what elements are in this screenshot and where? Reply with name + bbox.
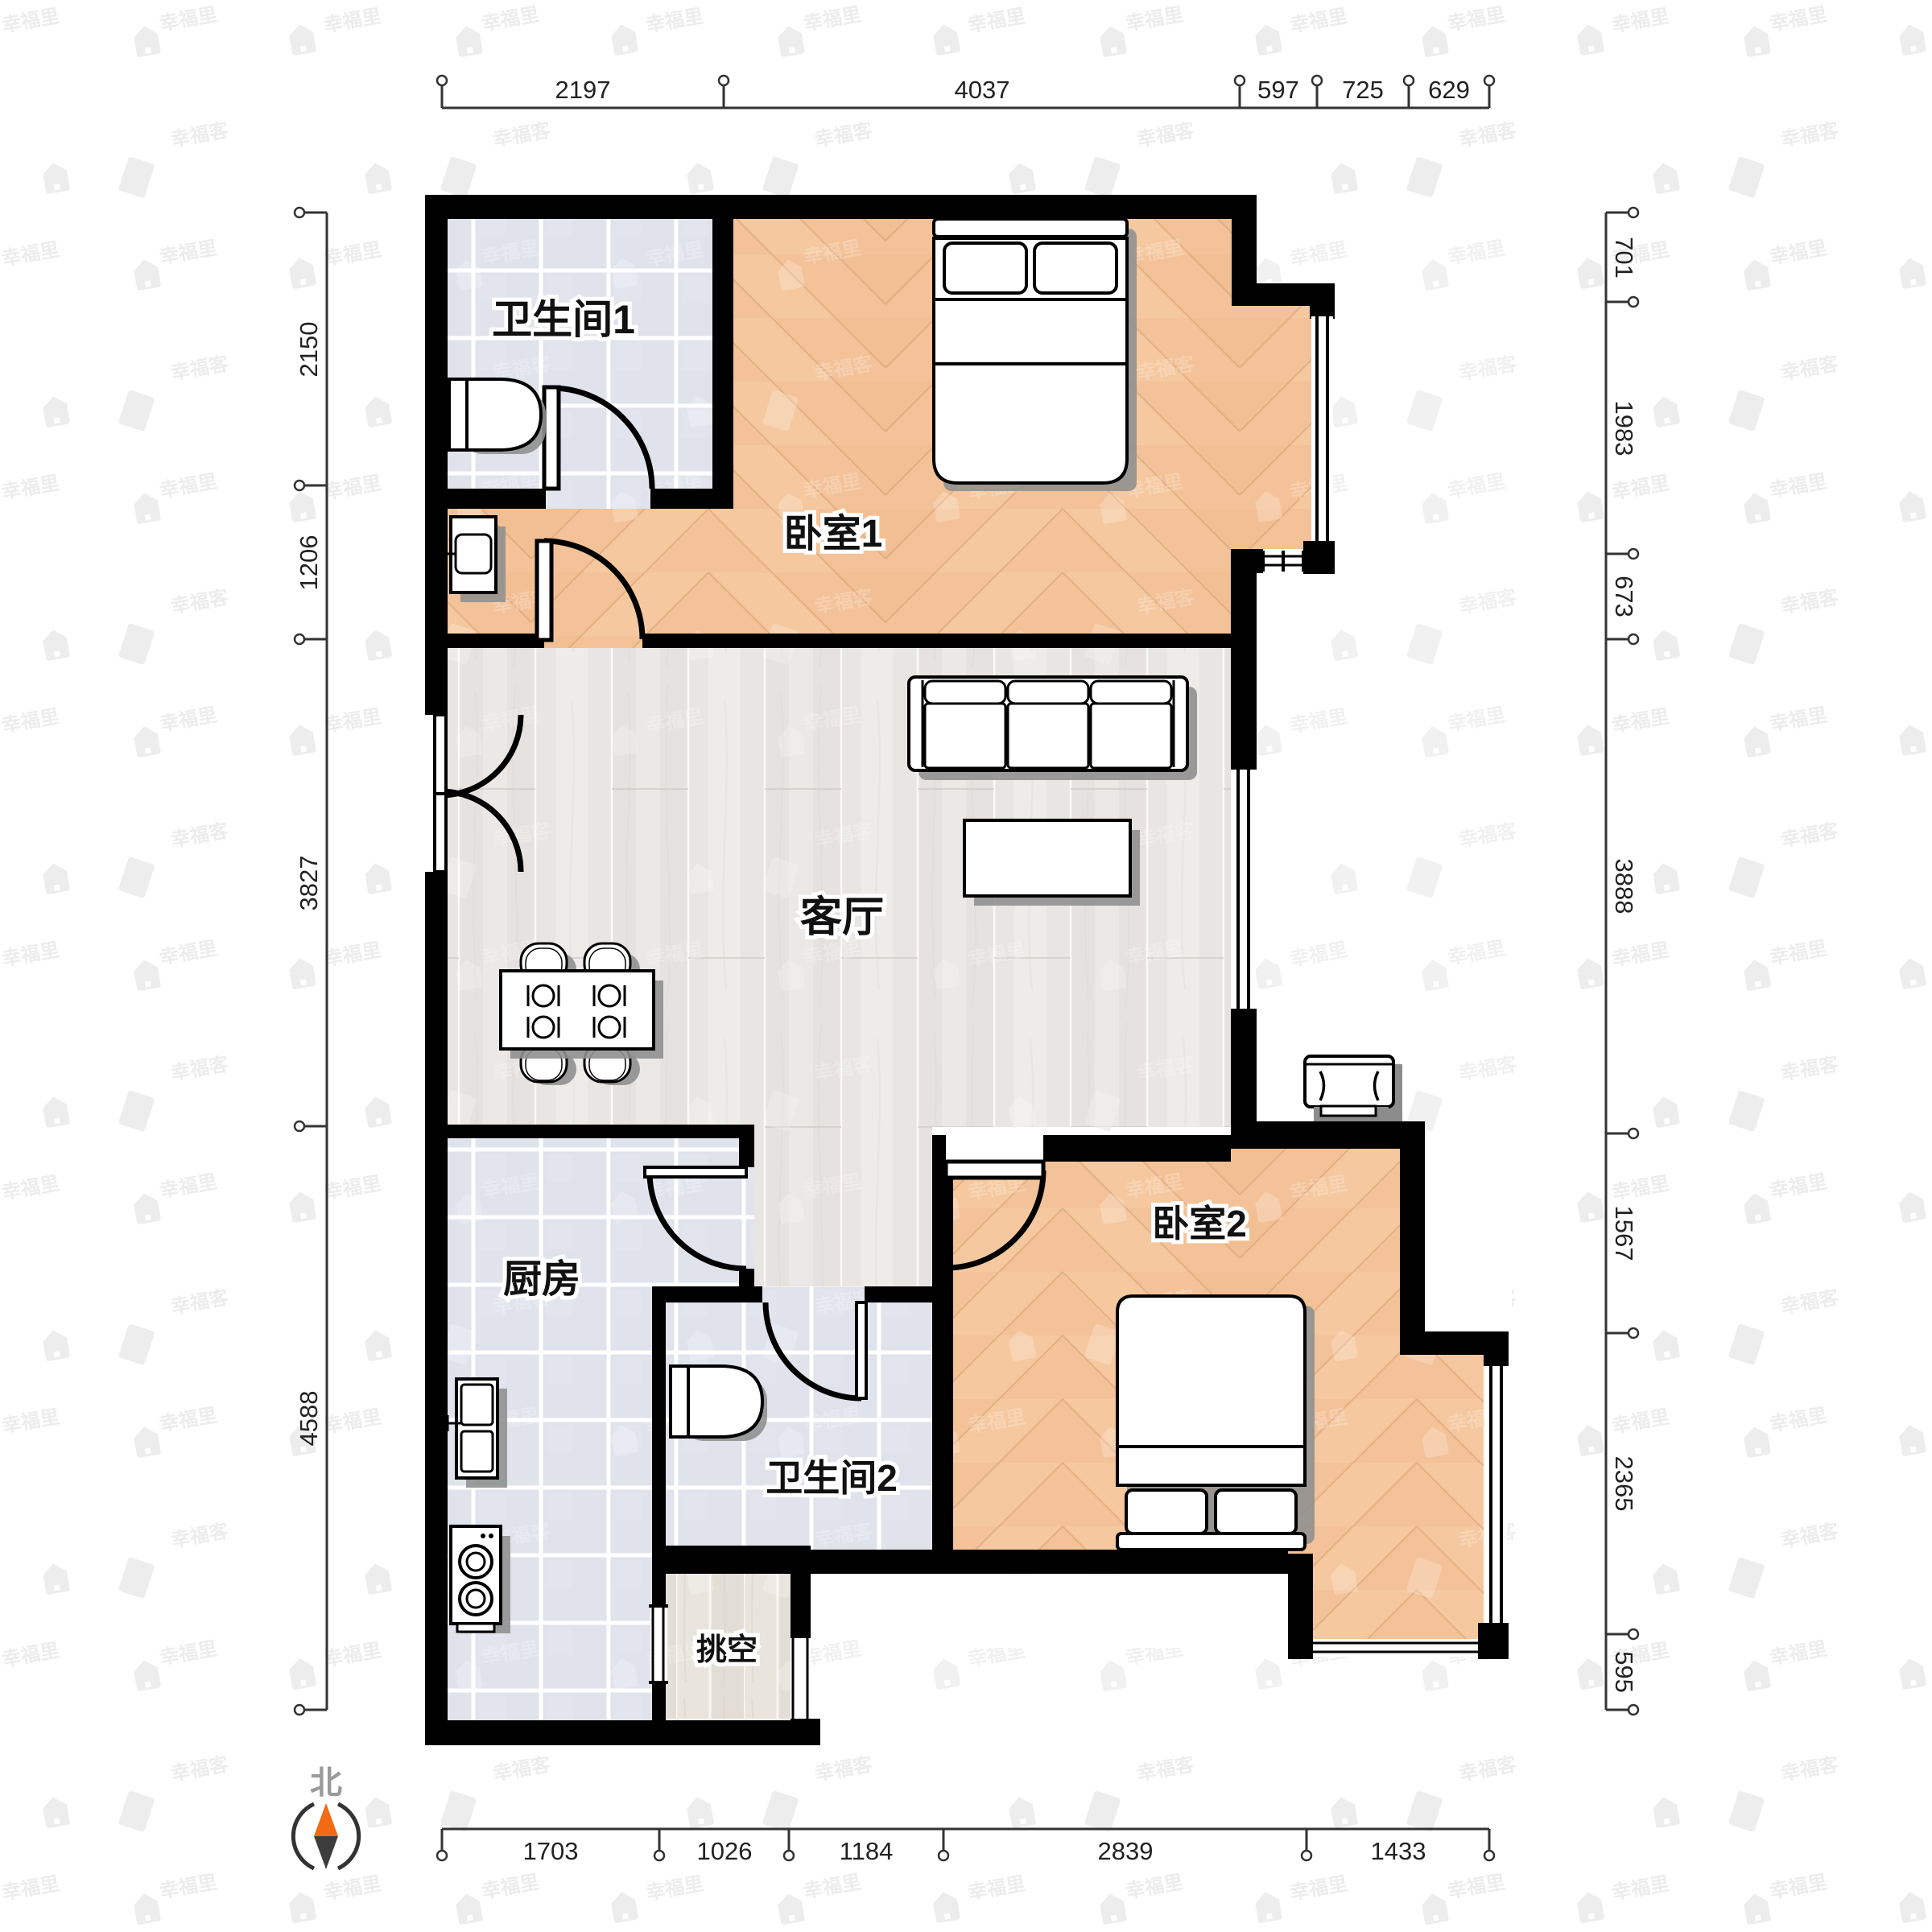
svg-text:1433: 1433 (1371, 1837, 1426, 1865)
svg-text:厨房: 厨房 (503, 1258, 580, 1301)
svg-text:卫生间1: 卫生间1 (492, 297, 635, 342)
svg-text:701: 701 (1610, 237, 1638, 279)
svg-text:客厅: 客厅 (800, 894, 884, 941)
svg-text:卧室1: 卧室1 (784, 513, 883, 555)
svg-text:3827: 3827 (295, 856, 323, 911)
svg-text:725: 725 (1342, 76, 1384, 104)
svg-text:595: 595 (1610, 1651, 1638, 1693)
svg-text:2150: 2150 (295, 322, 323, 378)
svg-text:4037: 4037 (955, 76, 1010, 104)
svg-text:2839: 2839 (1098, 1837, 1154, 1865)
svg-text:673: 673 (1610, 576, 1638, 617)
svg-text:629: 629 (1428, 76, 1470, 104)
svg-text:2197: 2197 (555, 76, 611, 104)
svg-text:1206: 1206 (295, 535, 323, 591)
svg-text:卫生间2: 卫生间2 (766, 1457, 898, 1499)
svg-text:1184: 1184 (840, 1837, 894, 1865)
svg-text:1026: 1026 (697, 1837, 753, 1865)
svg-text:1983: 1983 (1610, 401, 1638, 456)
svg-text:挑空: 挑空 (696, 1633, 758, 1667)
svg-text:3888: 3888 (1610, 859, 1638, 914)
svg-text:1703: 1703 (523, 1837, 579, 1865)
svg-text:597: 597 (1257, 76, 1299, 104)
svg-text:北: 北 (310, 1765, 342, 1801)
svg-text:1567: 1567 (1610, 1206, 1638, 1261)
svg-text:4588: 4588 (295, 1391, 323, 1447)
svg-text:卧室2: 卧室2 (1152, 1203, 1247, 1245)
svg-text:2365: 2365 (1610, 1456, 1638, 1512)
